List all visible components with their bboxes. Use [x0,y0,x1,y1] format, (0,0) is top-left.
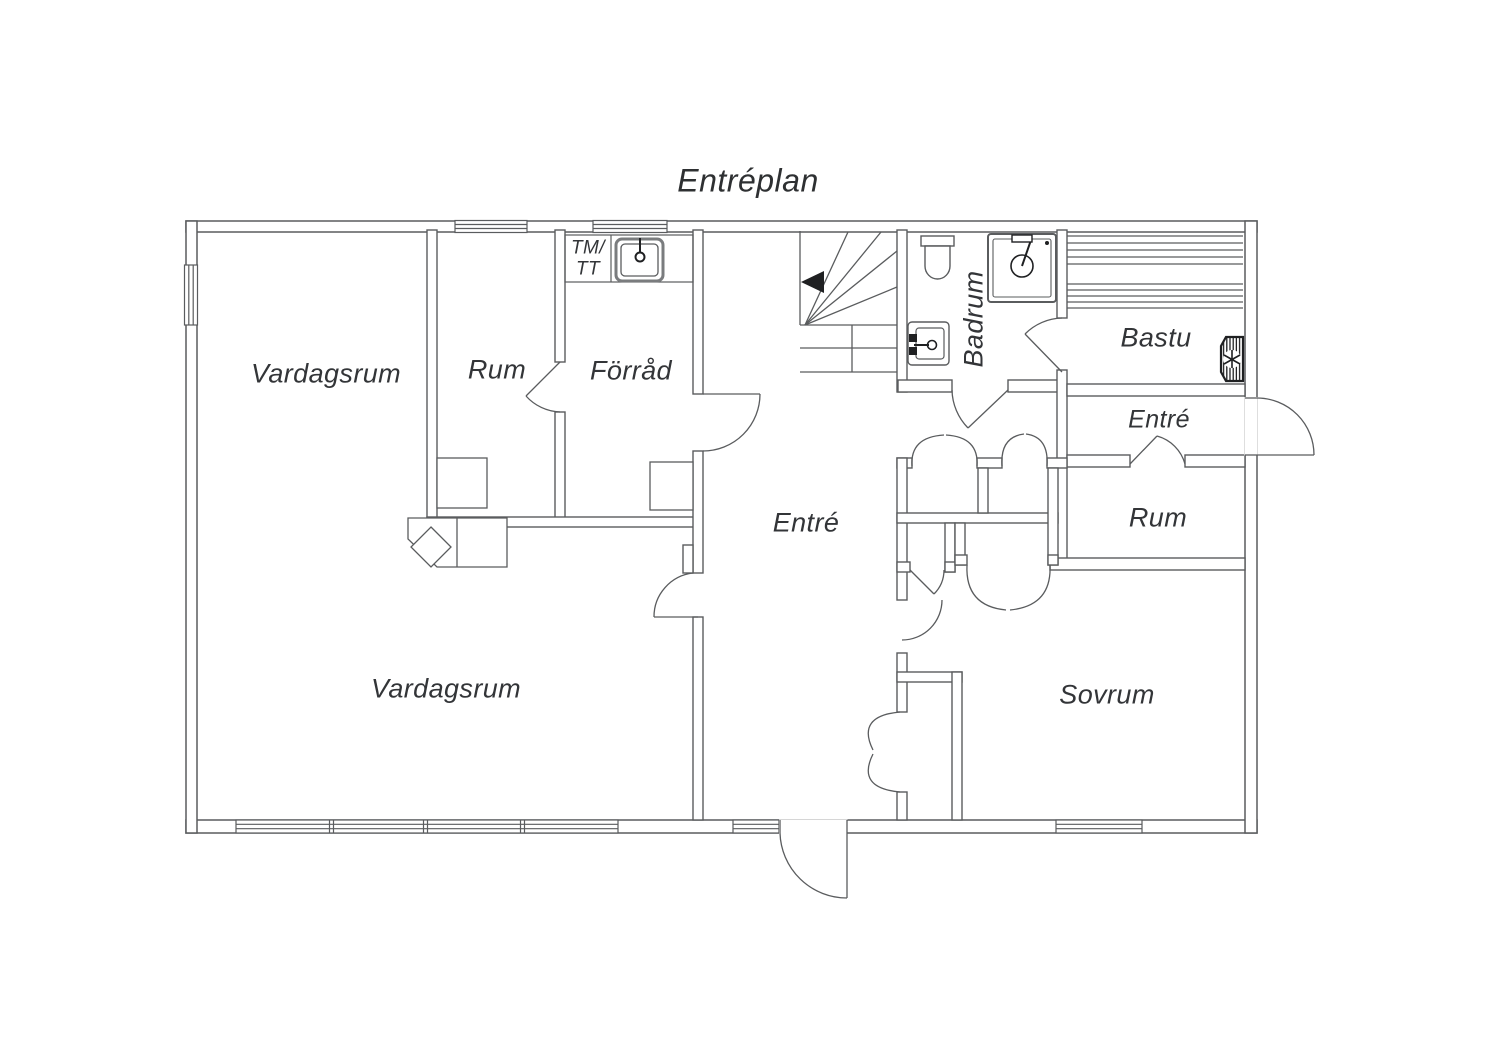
door-swing [1257,398,1314,455]
room-label-entre-side: Entré [1128,406,1190,435]
door-swing [526,396,560,412]
sauna-benches [1067,236,1243,308]
window [236,820,618,833]
door-swing [703,394,760,451]
door-swing [1025,318,1062,334]
stairs [800,231,897,372]
washbasin-icon [908,322,949,365]
closet-doors [868,712,900,792]
closet-doors [1002,434,1047,466]
door-swing [780,833,847,898]
room-label-bastu: Bastu [1120,323,1191,354]
room-label-sovrum: Sovrum [1059,680,1154,711]
closet-forrad [650,462,693,510]
door-vardagsrum [654,573,698,617]
door-swing [902,600,942,640]
room-label-rum-upper: Rum [468,355,526,386]
window [593,221,667,233]
door-swing [654,573,693,617]
toilet-icon [921,236,954,279]
room-label-entre-main: Entré [773,508,840,539]
main-entrance-door [779,820,848,899]
side-entrance-door [1244,397,1314,456]
door-swing [934,570,944,594]
page-title: Entréplan [677,163,818,200]
door-badrum [952,390,1008,428]
outer-walls [186,221,1257,833]
room-label-forrad: Förråd [590,356,672,387]
door-swing [1157,436,1185,464]
closet-rum [437,458,487,508]
door-bastu [1025,318,1062,372]
room-label-badrum: Badrum [959,271,990,368]
floor-plan-page: Entréplan Vardagsrum Rum Förråd TM/ TT E… [0,0,1500,1060]
sauna-heater-icon [1221,337,1243,381]
room-label-vardagsrum-lower: Vardagsrum [371,674,521,705]
window [185,265,198,325]
window [455,221,527,233]
door-sovrum [902,600,942,640]
room-label-vardagsrum-upper: Vardagsrum [251,359,401,390]
shower-icon [988,234,1056,302]
closet-doors [912,435,977,466]
floor-plan-drawing [0,0,1500,1060]
door-rum-upper [526,362,560,412]
door-rum-side [1130,436,1185,464]
stair-direction-arrow [801,271,824,293]
closet-doors [967,565,1050,610]
door-swing [952,390,968,428]
door-forrad [703,394,760,451]
room-label-rum-side: Rum [1129,503,1187,534]
room-label-tm-tt: TM/ TT [571,238,605,279]
laundry-sink-icon [616,238,663,281]
window [1056,820,1142,833]
fireplace-icon [408,518,507,567]
closet-door [910,570,944,594]
window [733,820,779,833]
